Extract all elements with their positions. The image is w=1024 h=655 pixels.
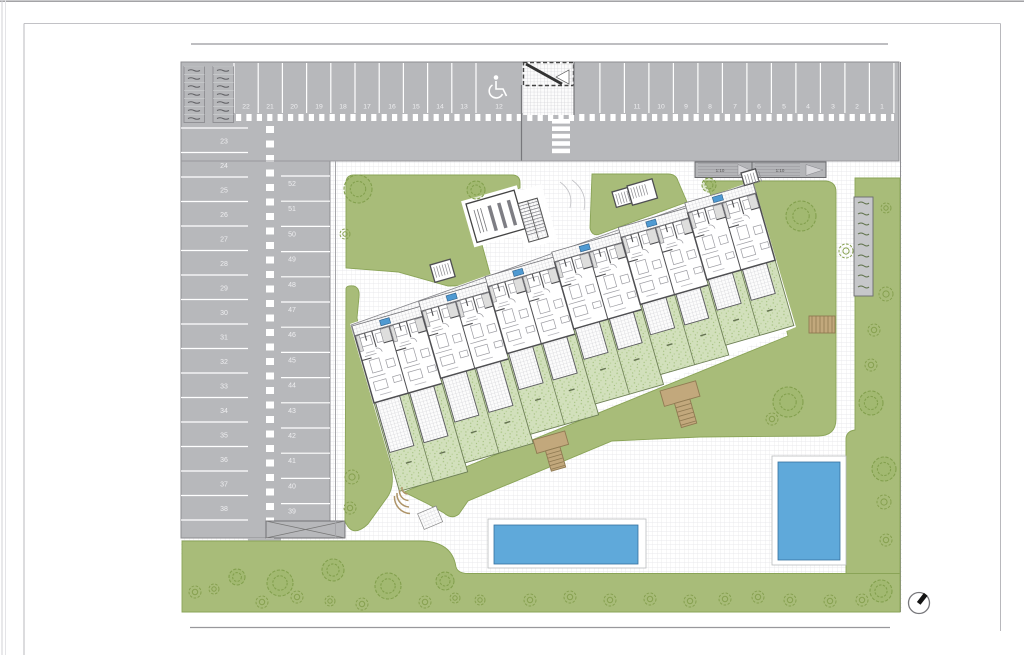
svg-text:9: 9 <box>684 104 688 111</box>
svg-text:29: 29 <box>220 286 228 293</box>
svg-text:36: 36 <box>220 457 228 464</box>
svg-text:10: 10 <box>657 104 665 111</box>
svg-text:6: 6 <box>757 104 761 111</box>
svg-text:43: 43 <box>288 408 296 415</box>
svg-text:46: 46 <box>288 332 296 339</box>
svg-text:25: 25 <box>220 188 228 195</box>
svg-text:2: 2 <box>855 104 859 111</box>
svg-text:26: 26 <box>220 212 228 219</box>
svg-text:11: 11 <box>633 104 640 111</box>
svg-text:34: 34 <box>220 408 228 415</box>
svg-text:48: 48 <box>288 282 296 289</box>
svg-text:37: 37 <box>220 482 228 489</box>
svg-text:35: 35 <box>220 433 228 440</box>
svg-text:15: 15 <box>412 104 420 111</box>
svg-text:44: 44 <box>288 383 296 390</box>
svg-text:52: 52 <box>288 181 296 188</box>
svg-text:5: 5 <box>782 104 786 111</box>
svg-text:17: 17 <box>363 104 371 111</box>
svg-text:22: 22 <box>242 104 250 111</box>
svg-text:31: 31 <box>220 335 228 342</box>
svg-text:38: 38 <box>220 506 228 513</box>
svg-text:23: 23 <box>220 139 228 146</box>
svg-text:14: 14 <box>436 104 444 111</box>
svg-text:27: 27 <box>220 237 228 244</box>
svg-text:12: 12 <box>495 104 503 111</box>
svg-text:13: 13 <box>460 104 468 111</box>
svg-text:51: 51 <box>288 206 296 213</box>
svg-text:32: 32 <box>220 359 228 366</box>
svg-text:42: 42 <box>288 433 296 440</box>
svg-text:8: 8 <box>708 104 712 111</box>
svg-text:50: 50 <box>288 231 296 238</box>
svg-text:33: 33 <box>220 384 228 391</box>
svg-text:47: 47 <box>288 307 296 314</box>
svg-text:7: 7 <box>733 104 737 111</box>
svg-text:41: 41 <box>288 458 296 465</box>
svg-text:1:10: 1:10 <box>776 168 785 173</box>
svg-text:40: 40 <box>288 483 296 490</box>
svg-text:45: 45 <box>288 357 296 364</box>
svg-text:30: 30 <box>220 310 228 317</box>
svg-text:20: 20 <box>290 104 298 111</box>
svg-text:18: 18 <box>339 104 347 111</box>
svg-text:1:10: 1:10 <box>716 168 725 173</box>
svg-text:21: 21 <box>266 104 274 111</box>
svg-text:3: 3 <box>831 104 835 111</box>
svg-text:39: 39 <box>288 509 296 516</box>
svg-text:16: 16 <box>388 104 396 111</box>
svg-text:19: 19 <box>315 104 323 111</box>
svg-text:28: 28 <box>220 261 228 268</box>
svg-text:1: 1 <box>880 104 884 111</box>
svg-text:24: 24 <box>220 163 228 170</box>
svg-text:4: 4 <box>806 104 810 111</box>
svg-text:49: 49 <box>288 257 296 264</box>
